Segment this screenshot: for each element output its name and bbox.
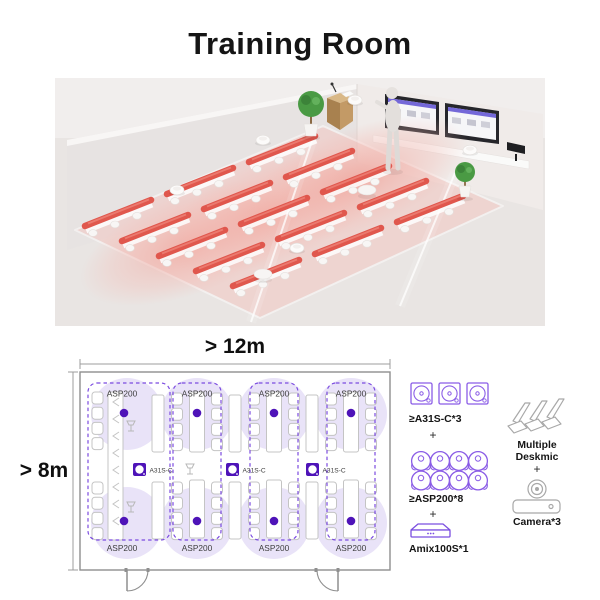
zone-asp200-label: ASP200 (182, 389, 213, 399)
zone-asp200-label: ASP200 (336, 543, 367, 553)
height-dimension (68, 372, 78, 570)
table (306, 482, 318, 539)
width-dimension (80, 359, 390, 369)
floor-plan: > 12m > 8m (0, 330, 600, 600)
table (152, 482, 164, 539)
legend: ≥A31S-C*3 + ≥ASP200*8 + Amix100S*1 (409, 383, 564, 555)
a31s-unit (133, 463, 146, 476)
table (344, 392, 359, 452)
side-table (358, 185, 376, 199)
mixer-box-icon (411, 524, 450, 537)
table (190, 480, 205, 538)
ptz-camera-icon (513, 480, 560, 513)
a31s-label: A31S-C (243, 468, 266, 475)
height-dimension-label: > 8m (20, 459, 68, 482)
legend-asp200-label: ≥ASP200*8 (409, 494, 463, 505)
plus-sign: + (429, 507, 436, 521)
zone-asp200-label: ASP200 (336, 389, 367, 399)
plus-sign: + (533, 462, 540, 476)
door (315, 568, 340, 591)
table (229, 395, 241, 452)
table (190, 392, 205, 452)
legend-a31s-label: ≥A31S-C*3 (409, 414, 462, 425)
table (267, 392, 282, 452)
zone-asp200-label: ASP200 (259, 389, 290, 399)
square-speaker-icon (411, 383, 488, 404)
table (229, 482, 241, 539)
zone-asp200-label: ASP200 (182, 543, 213, 553)
door (125, 568, 150, 591)
table (267, 480, 282, 538)
a31s-unit (306, 463, 319, 476)
a31s-label: A31S-C (323, 468, 346, 475)
width-dimension-label: > 12m (205, 335, 265, 358)
table (152, 395, 164, 452)
legend-deskmic-label: Multiple (517, 440, 556, 451)
round-speaker-icon (412, 452, 488, 490)
a31s-unit (226, 463, 239, 476)
table (306, 395, 318, 452)
zone-asp200-label: ASP200 (259, 543, 290, 553)
room-illustration (55, 78, 545, 326)
legend-amix-label: Amix100S*1 (409, 544, 469, 555)
a31s-label: A31S-C (150, 468, 173, 475)
side-table (254, 269, 272, 283)
zone-asp200-label: ASP200 (107, 543, 138, 553)
page-title: Training Room (0, 26, 600, 62)
desk-mic-icon (508, 399, 564, 433)
zone-asp200-label: ASP200 (107, 389, 138, 399)
legend-camera-label: Camera*3 (513, 517, 561, 528)
table (344, 480, 359, 538)
plus-sign: + (429, 428, 436, 442)
